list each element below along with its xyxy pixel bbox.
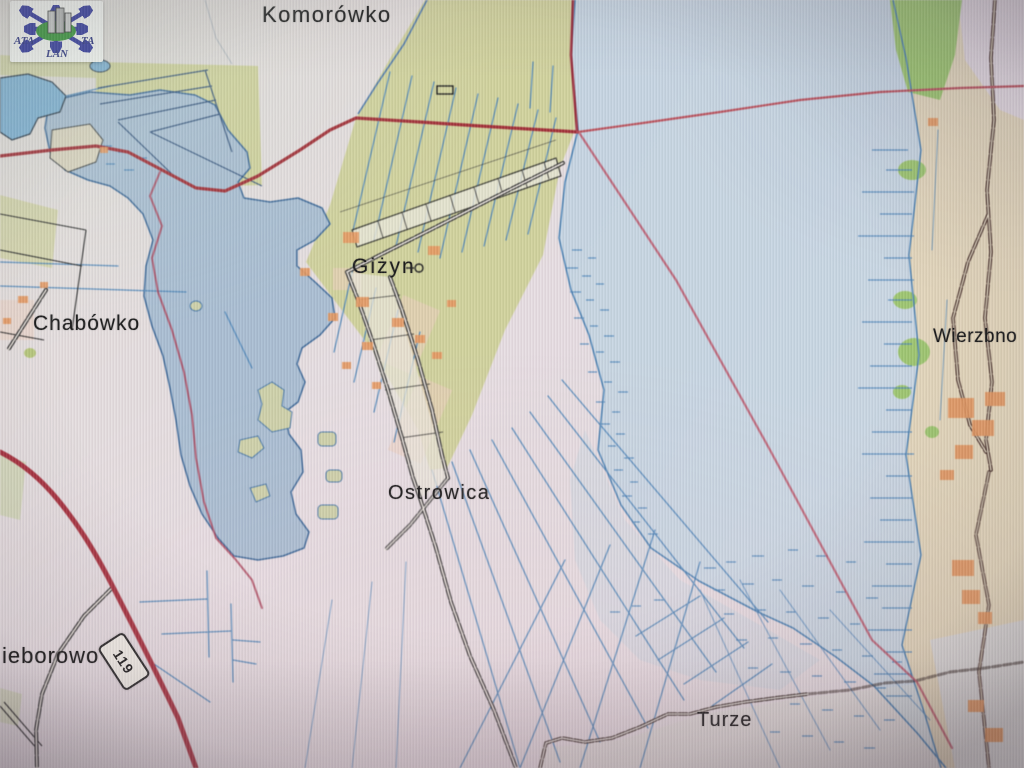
road-number: 119 [110,646,137,676]
place-label-chabowko: Chabówko [33,312,140,336]
place-label-gizyn: Giżyn [352,255,416,279]
place-label-komorowko: Komorówko [262,2,392,28]
logo-buildings-icon [48,8,71,33]
place-label-turze: Turze [697,709,752,732]
logo-text-right: TA [81,35,94,47]
logo-text-left: ATA [14,35,34,47]
place-label-nieborowo: ieborowo [2,643,99,669]
place-label-wierzbno: Wierzbno [933,326,1017,348]
vendor-logo: ATA TA LAN [10,1,103,62]
place-label-ostrowica: Ostrowica [388,482,490,505]
screen-photo: Komorówko Chabówko Giżyn Ostrowica Wierz… [0,0,1024,768]
map-canvas[interactable] [0,0,1024,768]
logo-text-bottom: LAN [46,48,68,60]
